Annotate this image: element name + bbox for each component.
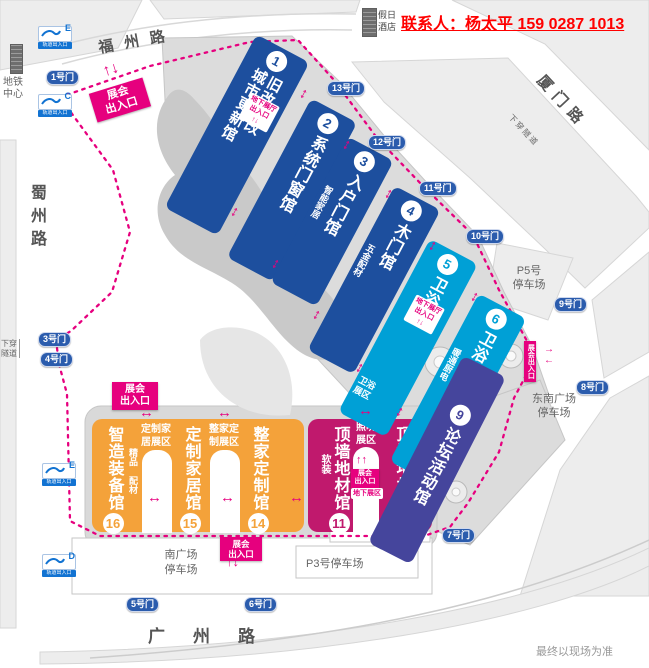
hall-number: 14 (248, 513, 269, 534)
tunnel-line1: 下穿 (1, 339, 17, 348)
metro-letter: C (65, 91, 72, 101)
esign-line: 出入口 (355, 478, 376, 485)
hall-16: 智造装备馆 16 精品 配材 (87, 426, 139, 534)
metro-entrance-D: D 轨道出入口 (42, 554, 76, 577)
flow-arrow-icon: ↔ (289, 490, 304, 505)
hall-number: 15 (180, 513, 201, 534)
underground-zone-sign: 地下展区 (351, 488, 383, 499)
esign-line: 出入口 (120, 396, 150, 407)
flow-arrow-icon: ↔ (217, 405, 232, 420)
metro-entrance-E-north: E 轨道出入口 (38, 26, 72, 49)
metro-center-line2: 中心 (3, 89, 23, 100)
zone-line: 整家定 (209, 424, 239, 435)
gate-9: 9号门 (554, 297, 587, 312)
sub-col: 精品 (128, 448, 138, 466)
metro-box: C (38, 94, 72, 110)
hall-name: 定制家居馆 (181, 426, 200, 511)
parking-se-line1: 东南广场 (532, 393, 576, 405)
sub-col: 配材 (128, 476, 138, 494)
metro-wave-icon (45, 466, 65, 476)
gate-7: 7号门 (442, 528, 475, 543)
metro-wave-icon (41, 97, 61, 107)
metro-letter: E (65, 23, 71, 33)
hall-name: 顶墙地材馆 (330, 426, 349, 511)
flow-arrow-icon: ↔ (147, 490, 162, 505)
expo-entrance-sign-south: 展会 出入口 (220, 537, 262, 561)
hotel-label: 假日 酒店 (378, 9, 396, 33)
esign-line: 展会 (358, 470, 372, 477)
up-down-arrow-icon: ↑↓ (415, 318, 424, 327)
gate-13: 13号门 (327, 81, 365, 96)
hall-14: 整家定制馆 14 (238, 426, 278, 534)
rail-entrance-label: 轨道出入口 (38, 110, 72, 117)
parking-p5-line2: 停车场 (513, 279, 546, 291)
esign-line: 展会 (125, 384, 145, 395)
hall-name: 木门馆 (372, 218, 412, 272)
tunnel-label-west: 下穿 隧道 (1, 339, 20, 358)
hall-15: 定制家居馆 15 (170, 426, 210, 534)
gate-12: 12号门 (368, 135, 406, 150)
flow-arrow-icon: ↔ (220, 490, 235, 505)
road-guangzhou: 广州路 (148, 622, 283, 647)
gate-11: 11号门 (419, 181, 457, 196)
hotel-line1: 假日 (378, 10, 396, 20)
parking-southeast: 东南广场 停车场 (522, 392, 586, 421)
hall-number: 11 (329, 513, 350, 534)
parking-p3: P3号停车场 (306, 555, 363, 571)
zone-line: 居展区 (141, 437, 171, 448)
flow-arrow-icon: ↔ (358, 403, 373, 418)
metro-center-line1: 地铁 (3, 77, 23, 88)
hall-sub-label: 卫浴 展区 (351, 375, 377, 403)
hall-name: 整家定制馆 (249, 426, 268, 511)
metro-box: E (38, 26, 72, 42)
parking-p5-line1: P5号 (517, 265, 541, 277)
venue-map: 福州路 厦门路 蜀州路 广州路 下穿 隧道 下穿隧道 地铁 中心 假日 酒店 联… (0, 0, 649, 668)
expo-entrance-sign-east: 展会出入口 (524, 341, 536, 382)
rail-entrance-label: 轨道出入口 (42, 479, 76, 486)
gate-10: 10号门 (466, 229, 504, 244)
expo-entrance-sign-west: 展会 出入口 (112, 382, 158, 410)
parking-p5: P5号 停车场 (506, 264, 552, 293)
zone-line: 定制家 (141, 424, 171, 435)
hall-sub-label: 软装 (318, 454, 330, 474)
metro-center-label: 地铁 中心 (3, 77, 23, 101)
metro-entrance-E-south: E 轨道出入口 (42, 463, 76, 486)
metro-letter: D (69, 551, 76, 561)
parking-south: 南广场 停车场 (146, 548, 216, 578)
esign-line: 出入口 (228, 549, 254, 559)
expo-entrance-sign-notch: 展会 出入口 (351, 469, 379, 488)
hotel-building-icon (362, 8, 377, 37)
gate-4: 4号门 (40, 352, 73, 367)
metro-entrance-C: C 轨道出入口 (38, 94, 72, 117)
tunnel-line2: 隧道 (1, 349, 17, 358)
gate-6: 6号门 (244, 597, 277, 612)
metro-center-building-icon (10, 44, 23, 74)
gate-3: 3号门 (38, 332, 71, 347)
up-up-arrow-icon: ↑↑ (356, 455, 367, 466)
hotel-line2: 酒店 (378, 22, 396, 32)
hall-name: 智造装备馆 (104, 426, 123, 511)
gate-1: 1号门 (46, 70, 79, 85)
gate-5: 5号门 (126, 597, 159, 612)
esign-line: 展会 (232, 539, 249, 549)
metro-letter: E (69, 460, 75, 470)
zone-line: 制展区 (209, 437, 239, 448)
right-arrow-icon: → (544, 344, 554, 355)
hall-number: 16 (103, 513, 124, 534)
parking-south-line1: 南广场 (165, 549, 198, 561)
hall-sub-label: 精品 配材 (127, 448, 139, 494)
up-down-arrow-icon: ↑↓ (250, 116, 259, 125)
parking-south-line2: 停车场 (165, 564, 198, 576)
left-arrow-icon: ← (544, 355, 554, 366)
disclaimer: 最终以现场为准 (536, 643, 613, 659)
metro-box: E (42, 463, 76, 479)
road-shuzhou: 蜀州路 (24, 184, 48, 253)
metro-box: D (42, 554, 76, 570)
rail-entrance-label: 轨道出入口 (42, 570, 76, 577)
metro-wave-icon (41, 29, 61, 39)
rail-entrance-label: 轨道出入口 (38, 42, 72, 49)
metro-wave-icon (45, 557, 65, 567)
left-right-arrow-icons: → ← (544, 344, 554, 366)
gate-8: 8号门 (576, 380, 609, 395)
parking-se-line2: 停车场 (538, 407, 571, 419)
contact-info: 联系人：杨太平 159 0287 1013 (401, 10, 624, 34)
